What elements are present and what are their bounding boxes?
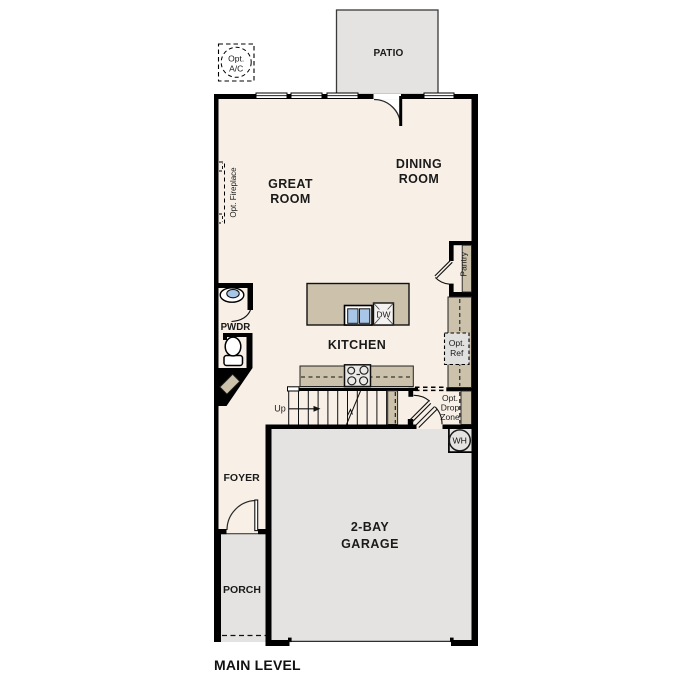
svg-text:2-BAY: 2-BAY [351, 520, 390, 534]
svg-text:Ref: Ref [450, 348, 464, 358]
svg-text:ROOM: ROOM [270, 192, 311, 206]
svg-text:Zone: Zone [440, 412, 460, 422]
svg-text:KITCHEN: KITCHEN [328, 338, 386, 352]
svg-text:GREAT: GREAT [268, 177, 313, 191]
svg-text:Opt. Fireplace: Opt. Fireplace [229, 167, 238, 218]
svg-text:DINING: DINING [396, 157, 442, 171]
svg-text:Opt.: Opt. [228, 54, 244, 64]
svg-text:PORCH: PORCH [223, 584, 261, 596]
svg-text:Pantry: Pantry [458, 251, 468, 276]
svg-text:Opt.: Opt. [442, 393, 458, 403]
svg-text:FOYER: FOYER [224, 472, 261, 484]
svg-text:PWDR: PWDR [221, 322, 251, 333]
svg-text:Drop: Drop [441, 403, 460, 413]
svg-text:GARAGE: GARAGE [341, 537, 399, 551]
svg-text:Up: Up [274, 404, 286, 414]
svg-text:ROOM: ROOM [399, 172, 440, 186]
svg-text:DW: DW [376, 310, 390, 320]
svg-text:PATIO: PATIO [373, 48, 403, 59]
svg-text:Opt.: Opt. [449, 338, 465, 348]
svg-text:WH: WH [452, 436, 466, 446]
svg-text:A/C: A/C [229, 64, 243, 74]
svg-text:MAIN LEVEL: MAIN LEVEL [214, 657, 301, 673]
